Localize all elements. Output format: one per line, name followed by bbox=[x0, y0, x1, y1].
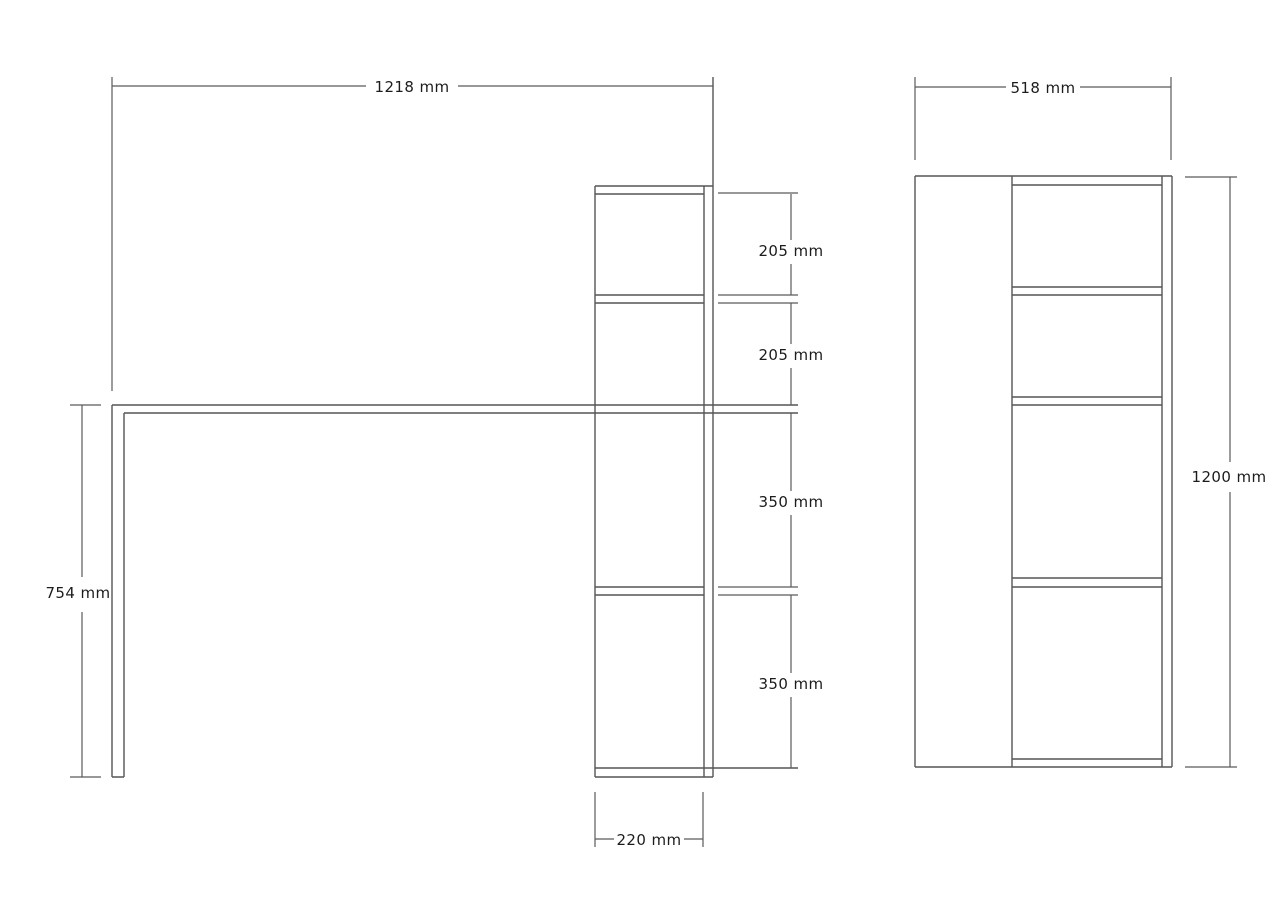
dim-label-shelf-depth: 220 mm bbox=[616, 831, 681, 849]
side-outline bbox=[915, 176, 1172, 767]
dim-overall-depth: 518 mm bbox=[915, 77, 1171, 160]
dim-label-overall-width: 1218 mm bbox=[375, 78, 450, 96]
dim-overall-height: 1200 mm bbox=[1185, 177, 1266, 767]
dim-label-section-1: 205 mm bbox=[758, 242, 823, 260]
desk-outline bbox=[112, 405, 798, 777]
dim-label-section-2: 205 mm bbox=[758, 346, 823, 364]
shelf-unit-outline bbox=[595, 77, 798, 777]
technical-drawing-canvas: 1218 mm 754 mm 205 mm 205 mm 350 mm 350 … bbox=[0, 0, 1280, 905]
dim-shelf-sections: 205 mm 205 mm 350 mm 350 mm bbox=[758, 194, 823, 768]
dim-overall-width-lines bbox=[112, 77, 713, 391]
dim-overall-width: 1218 mm bbox=[112, 77, 713, 391]
dim-label-section-4: 350 mm bbox=[758, 675, 823, 693]
dim-label-overall-depth: 518 mm bbox=[1010, 79, 1075, 97]
front-view: 1218 mm 754 mm 205 mm 205 mm 350 mm 350 … bbox=[45, 77, 823, 849]
dim-label-desk-height: 754 mm bbox=[45, 584, 110, 602]
dim-shelf-depth: 220 mm bbox=[595, 792, 703, 849]
dim-desk-height: 754 mm bbox=[45, 405, 110, 777]
side-view: 518 mm 1200 mm bbox=[915, 77, 1266, 767]
dim-label-section-3: 350 mm bbox=[758, 493, 823, 511]
dim-label-overall-height: 1200 mm bbox=[1192, 468, 1267, 486]
desk-shelf-dimension-drawing: 1218 mm 754 mm 205 mm 205 mm 350 mm 350 … bbox=[0, 0, 1280, 905]
